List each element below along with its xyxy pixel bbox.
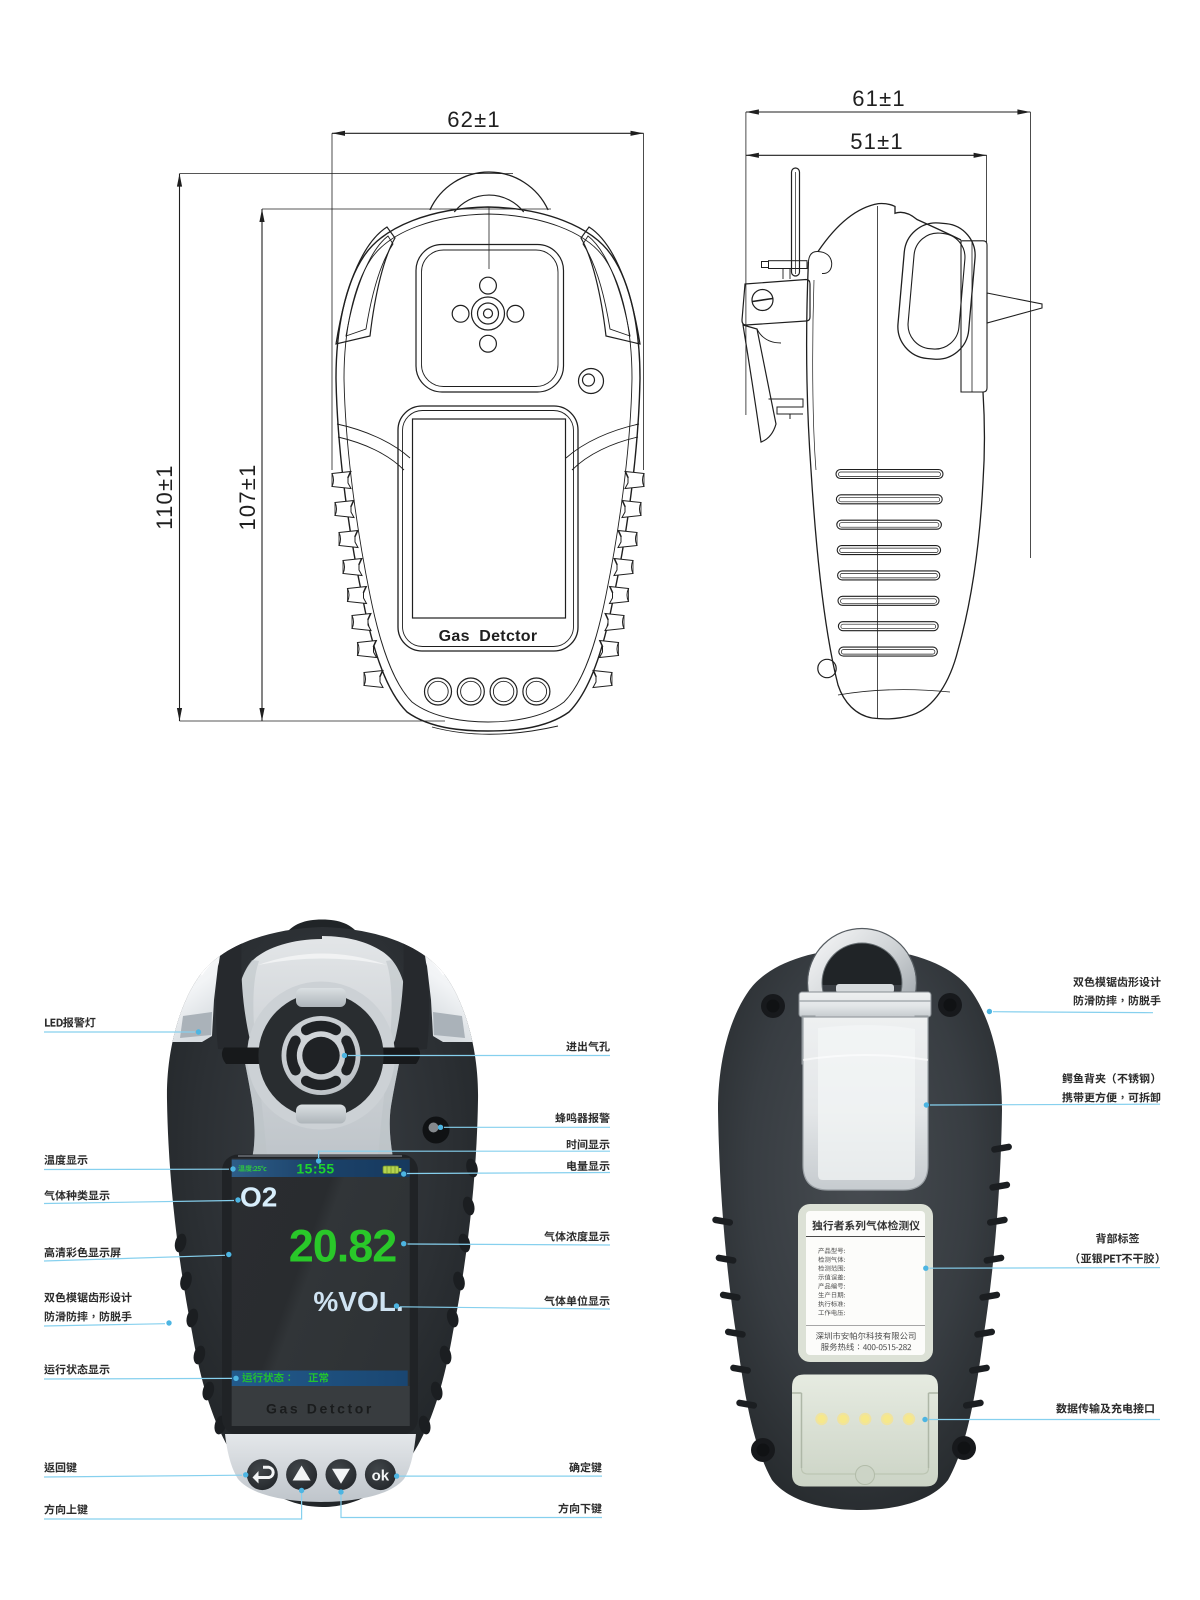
- svg-text:15:55: 15:55: [296, 1161, 334, 1177]
- svg-text:ok: ok: [372, 1467, 390, 1484]
- svg-text:107±1: 107±1: [235, 463, 260, 530]
- svg-text:61±1: 61±1: [852, 86, 906, 111]
- svg-text:Gas Detctor: Gas Detctor: [439, 628, 538, 645]
- svg-text:O2: O2: [240, 1182, 277, 1213]
- svg-text:%VOL.: %VOL.: [313, 1286, 403, 1317]
- svg-text:Gas Detctor: Gas Detctor: [266, 1401, 374, 1417]
- svg-text:110±1: 110±1: [152, 464, 177, 529]
- svg-text:51±1: 51±1: [850, 129, 904, 154]
- svg-text:62±1: 62±1: [447, 107, 501, 132]
- svg-text:20.82: 20.82: [289, 1221, 397, 1272]
